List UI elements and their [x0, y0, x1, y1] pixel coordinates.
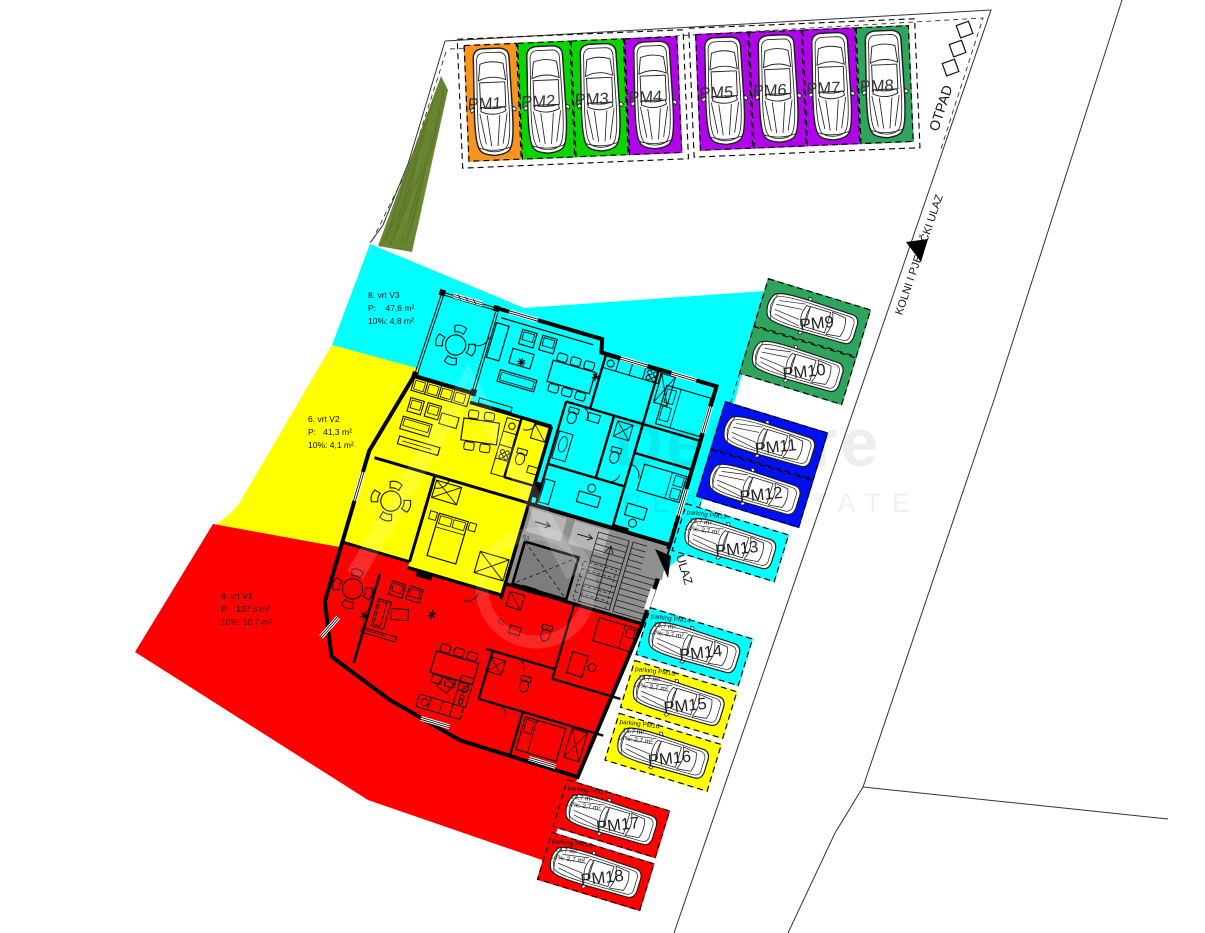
svg-text:PM3: PM3 — [574, 89, 609, 109]
svg-text:PM9: PM9 — [799, 313, 835, 334]
svg-text:PM4: PM4 — [628, 87, 663, 107]
svg-text:PM5: PM5 — [699, 82, 734, 102]
svg-text:8. vrt V3: 8. vrt V3 — [368, 290, 400, 300]
svg-text:PM2: PM2 — [521, 91, 556, 111]
svg-text:10%: 10,7 m²: 10%: 10,7 m² — [221, 617, 272, 627]
svg-text:PM7: PM7 — [806, 78, 841, 98]
svg-text:P: 107,5 m²: P: 107,5 m² — [221, 604, 270, 614]
svg-text:10%: 4,1 m²: 10%: 4,1 m² — [308, 440, 354, 450]
svg-text:PM6: PM6 — [752, 80, 787, 100]
svg-text:6. vrt V2: 6. vrt V2 — [308, 414, 340, 424]
svg-text:P: 41,3 m²: P: 41,3 m² — [308, 427, 352, 437]
svg-text:10%: 4,8 m²: 10%: 4,8 m² — [368, 316, 414, 326]
svg-text:PM8: PM8 — [859, 76, 894, 96]
svg-text:PM1: PM1 — [467, 93, 502, 113]
svg-text:9. vrt V1: 9. vrt V1 — [221, 591, 253, 601]
svg-text:P: 47,6 m²: P: 47,6 m² — [368, 303, 414, 313]
